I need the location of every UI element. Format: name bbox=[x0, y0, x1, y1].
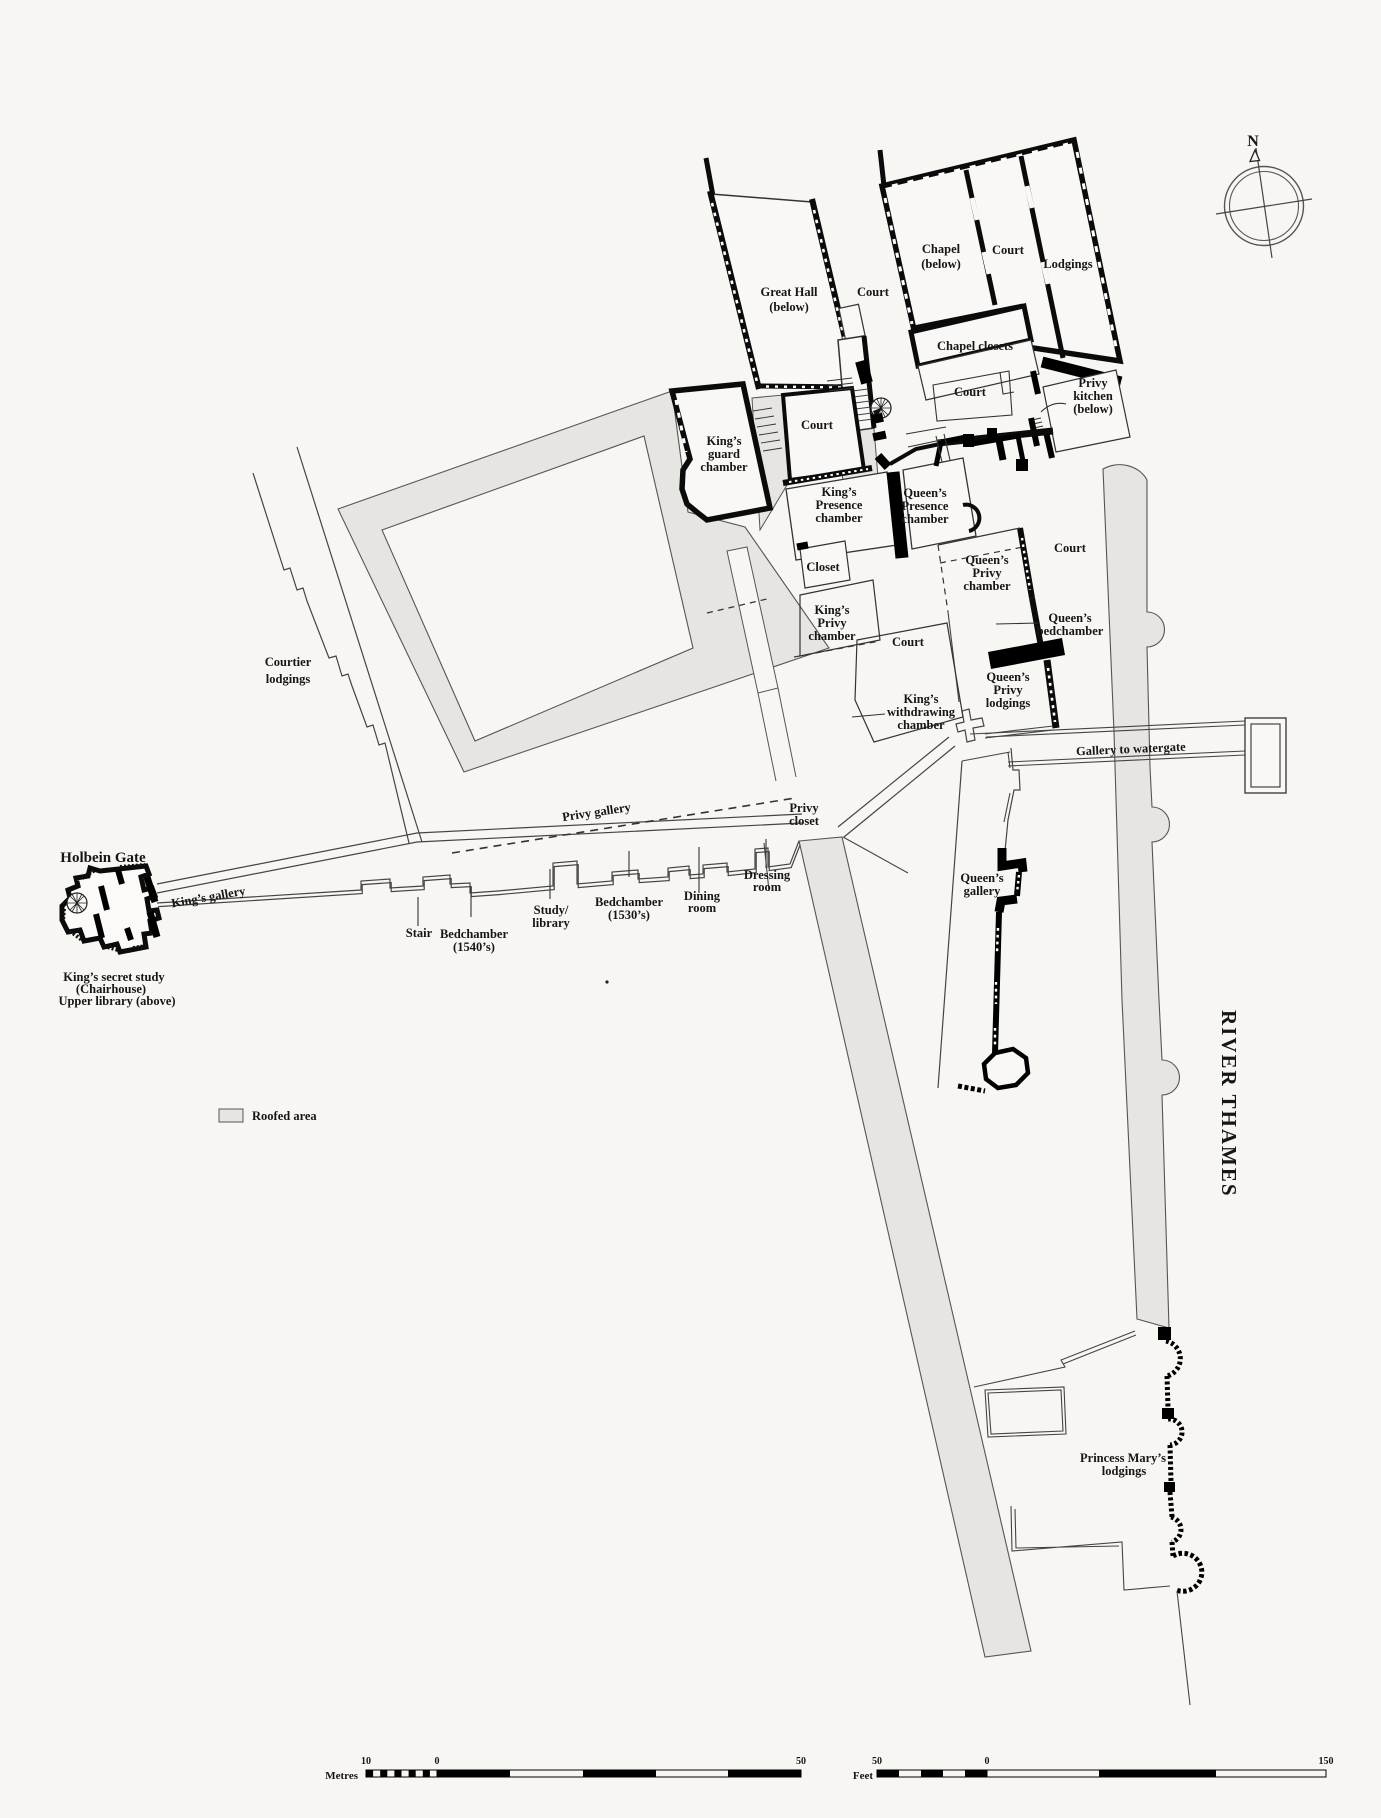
svg-text:lodgings: lodgings bbox=[1102, 1464, 1147, 1478]
svg-text:Princess Mary’s: Princess Mary’s bbox=[1080, 1451, 1166, 1465]
svg-text:(below): (below) bbox=[769, 300, 809, 314]
svg-text:room: room bbox=[688, 901, 717, 915]
svg-text:Bedchamber: Bedchamber bbox=[595, 895, 664, 909]
svg-text:Queen’s: Queen’s bbox=[960, 871, 1003, 885]
svg-text:closet: closet bbox=[789, 814, 820, 828]
svg-text:Chapel closets: Chapel closets bbox=[937, 339, 1013, 353]
svg-text:lodgings: lodgings bbox=[266, 672, 311, 686]
svg-text:chamber: chamber bbox=[815, 511, 863, 525]
svg-text:RIVER THAMES: RIVER THAMES bbox=[1217, 1010, 1241, 1198]
svg-text:N: N bbox=[1247, 133, 1259, 150]
svg-text:Court: Court bbox=[954, 385, 987, 399]
svg-text:gallery: gallery bbox=[964, 884, 1002, 898]
svg-text:Courtier: Courtier bbox=[265, 655, 312, 669]
svg-text:bedchamber: bedchamber bbox=[1037, 624, 1104, 638]
svg-text:chamber: chamber bbox=[808, 629, 856, 643]
svg-text:Court: Court bbox=[801, 418, 834, 432]
svg-text:Feet: Feet bbox=[853, 1770, 873, 1782]
svg-text:Stair: Stair bbox=[406, 926, 433, 940]
svg-text:Privy: Privy bbox=[1078, 376, 1108, 390]
svg-text:50: 50 bbox=[796, 1756, 806, 1767]
svg-text:Study/: Study/ bbox=[534, 903, 569, 917]
svg-text:Metres: Metres bbox=[325, 1770, 358, 1782]
svg-text:0: 0 bbox=[435, 1756, 440, 1767]
svg-text:Closet: Closet bbox=[806, 560, 840, 574]
svg-text:(below): (below) bbox=[921, 257, 961, 271]
svg-text:Privy: Privy bbox=[972, 566, 1002, 580]
svg-text:Queen’s: Queen’s bbox=[965, 553, 1008, 567]
svg-text:Privy: Privy bbox=[789, 801, 819, 815]
svg-text:0: 0 bbox=[985, 1756, 990, 1767]
svg-text:chamber: chamber bbox=[700, 460, 748, 474]
svg-text:lodgings: lodgings bbox=[986, 696, 1031, 710]
svg-text:guard: guard bbox=[708, 447, 740, 461]
svg-text:Great Hall: Great Hall bbox=[760, 285, 818, 299]
svg-text:Bedchamber: Bedchamber bbox=[440, 927, 509, 941]
svg-text:Presence: Presence bbox=[816, 498, 863, 512]
svg-text:Court: Court bbox=[992, 243, 1025, 257]
svg-text:chamber: chamber bbox=[901, 512, 949, 526]
svg-text:Court: Court bbox=[892, 635, 925, 649]
svg-text:kitchen: kitchen bbox=[1073, 389, 1113, 403]
svg-text:room: room bbox=[753, 880, 782, 894]
svg-text:Court: Court bbox=[857, 285, 890, 299]
svg-text:10: 10 bbox=[361, 1756, 371, 1767]
svg-text:Queen’s: Queen’s bbox=[1048, 611, 1091, 625]
svg-text:Privy: Privy bbox=[817, 616, 847, 630]
svg-text:50: 50 bbox=[872, 1756, 882, 1767]
svg-text:150: 150 bbox=[1319, 1756, 1334, 1767]
svg-text:King’s: King’s bbox=[904, 692, 939, 706]
svg-text:King’s: King’s bbox=[815, 603, 850, 617]
svg-text:Lodgings: Lodgings bbox=[1043, 257, 1092, 271]
svg-text:(1540’s): (1540’s) bbox=[453, 940, 495, 954]
svg-text:Roofed area: Roofed area bbox=[252, 1109, 317, 1123]
svg-text:Chapel: Chapel bbox=[922, 242, 961, 256]
svg-text:Court: Court bbox=[1054, 541, 1087, 555]
svg-text:library: library bbox=[532, 916, 570, 930]
svg-text:King’s: King’s bbox=[707, 434, 742, 448]
svg-text:(below): (below) bbox=[1073, 402, 1113, 416]
svg-text:Queen’s: Queen’s bbox=[903, 486, 946, 500]
svg-text:Holbein Gate: Holbein Gate bbox=[60, 850, 146, 866]
svg-text:(1530’s): (1530’s) bbox=[608, 908, 650, 922]
svg-text:Presence: Presence bbox=[902, 499, 949, 513]
svg-text:Privy: Privy bbox=[993, 683, 1023, 697]
svg-text:Queen’s: Queen’s bbox=[986, 670, 1029, 684]
svg-text:withdrawing: withdrawing bbox=[887, 705, 956, 719]
svg-text:Upper library (above): Upper library (above) bbox=[58, 994, 175, 1008]
svg-text:King’s: King’s bbox=[822, 485, 857, 499]
svg-text:chamber: chamber bbox=[897, 718, 945, 732]
svg-text:chamber: chamber bbox=[963, 579, 1011, 593]
